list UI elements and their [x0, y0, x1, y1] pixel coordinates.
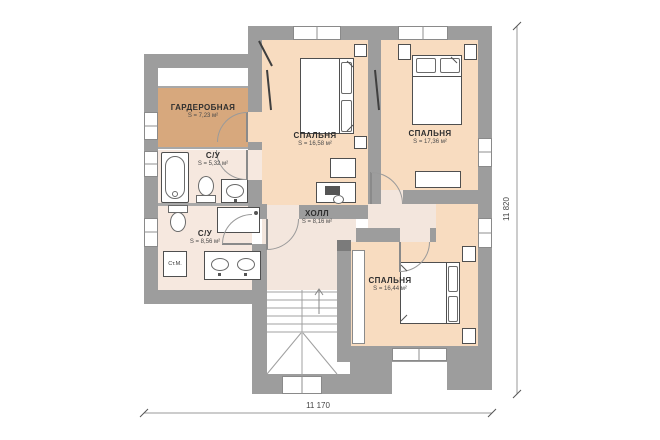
doorway-wardrobe — [248, 112, 262, 142]
nightstand-icon-2b — [464, 44, 477, 60]
window-right-2 — [478, 218, 492, 248]
line-wardrobe-bath1 — [158, 147, 248, 149]
dresser-icon-2 — [415, 171, 461, 188]
dresser-icon-1 — [330, 158, 356, 178]
room-bedroom-3-upper — [436, 204, 478, 242]
nightstand-icon-2a — [398, 44, 411, 60]
room-area: S = 17,36 м² — [383, 139, 477, 147]
washing-machine-icon: Ст.М. — [163, 251, 187, 277]
room-area: S = 7,23 м² — [158, 113, 248, 121]
bed-icon-2 — [412, 55, 462, 125]
label-bathroom-2: С/У S = 8,56 м² — [158, 229, 252, 247]
room-area: S = 5,32 м² — [180, 161, 246, 169]
nightstand-icon-3b — [462, 328, 476, 344]
wardrobe-attic-space — [158, 68, 248, 88]
wall-corner-bl — [350, 362, 392, 394]
wall-wardrobe-right-a — [248, 68, 262, 112]
bed-icon-1 — [300, 58, 354, 134]
floor-plan: Ст.М. — [0, 0, 660, 440]
room-area: S = 16,58 м² — [263, 141, 367, 149]
label-hall: ХОЛЛ S = 8,16 м² — [270, 209, 364, 227]
nightstand-icon-1a — [354, 44, 367, 57]
room-area: S = 16,44 м² — [343, 286, 437, 294]
doorway-bathroom-1 — [248, 150, 262, 180]
toilet-icon-1 — [196, 176, 216, 204]
wall-wardrobe-right-b — [248, 142, 262, 150]
room-name: С/У — [180, 151, 246, 161]
double-vanity-icon — [204, 251, 261, 280]
window-left-3 — [144, 218, 158, 247]
dimension-height: 11 820 — [502, 179, 514, 239]
room-name: СПАЛЬНЯ — [383, 129, 477, 139]
wall-bedroom3-hinge — [430, 228, 436, 242]
room-area: S = 8,16 м² — [270, 219, 364, 227]
wall-left — [144, 54, 158, 304]
room-name: С/У — [158, 229, 252, 239]
dimension-width: 11 170 — [144, 401, 492, 410]
sink-icon-1 — [221, 179, 248, 203]
room-name: ХОЛЛ — [270, 209, 364, 219]
line-wardrobe-top — [158, 86, 248, 88]
wall-top — [248, 26, 492, 40]
room-name: ГАРДЕРОБНАЯ — [158, 103, 248, 113]
wall-wardrobe-right-c — [248, 180, 262, 205]
label-bedroom-2: СПАЛЬНЯ S = 17,36 м² — [383, 129, 477, 147]
room-name: СПАЛЬНЯ — [343, 276, 437, 286]
room-name: СПАЛЬНЯ — [263, 131, 367, 141]
wall-bedroom3-left-cap — [337, 240, 351, 251]
door-leaf-bathroom1 — [246, 150, 248, 180]
washing-machine-label: Ст.М. — [164, 261, 186, 267]
window-top-1 — [293, 26, 341, 40]
window-left-1 — [144, 112, 158, 140]
label-bathroom-1: С/У S = 5,32 м² — [180, 151, 246, 169]
room-area: S = 8,56 м² — [158, 239, 252, 247]
desk-icon — [316, 182, 356, 203]
window-bottom-stairs — [282, 376, 322, 394]
nightstand-icon-3a — [462, 246, 476, 262]
window-top-2 — [398, 26, 448, 40]
wall-corner-br — [447, 362, 492, 390]
wall-top-left — [144, 54, 256, 68]
wall-bedroom2-bottom-b — [403, 190, 478, 204]
label-bedroom-1: СПАЛЬНЯ S = 16,58 м² — [263, 131, 367, 149]
closet-icon — [352, 250, 365, 344]
window-right-1 — [478, 138, 492, 167]
wall-bedroom3-top — [356, 228, 400, 242]
label-bedroom-3: СПАЛЬНЯ S = 16,44 м² — [343, 276, 437, 294]
wall-bottom-left — [144, 290, 267, 304]
window-bottom-bedroom3 — [392, 348, 447, 361]
staircase-area — [267, 290, 337, 374]
window-left-2 — [144, 151, 158, 177]
label-wardrobe: ГАРДЕРОБНАЯ S = 7,23 м² — [158, 103, 248, 121]
wall-right — [478, 26, 492, 360]
